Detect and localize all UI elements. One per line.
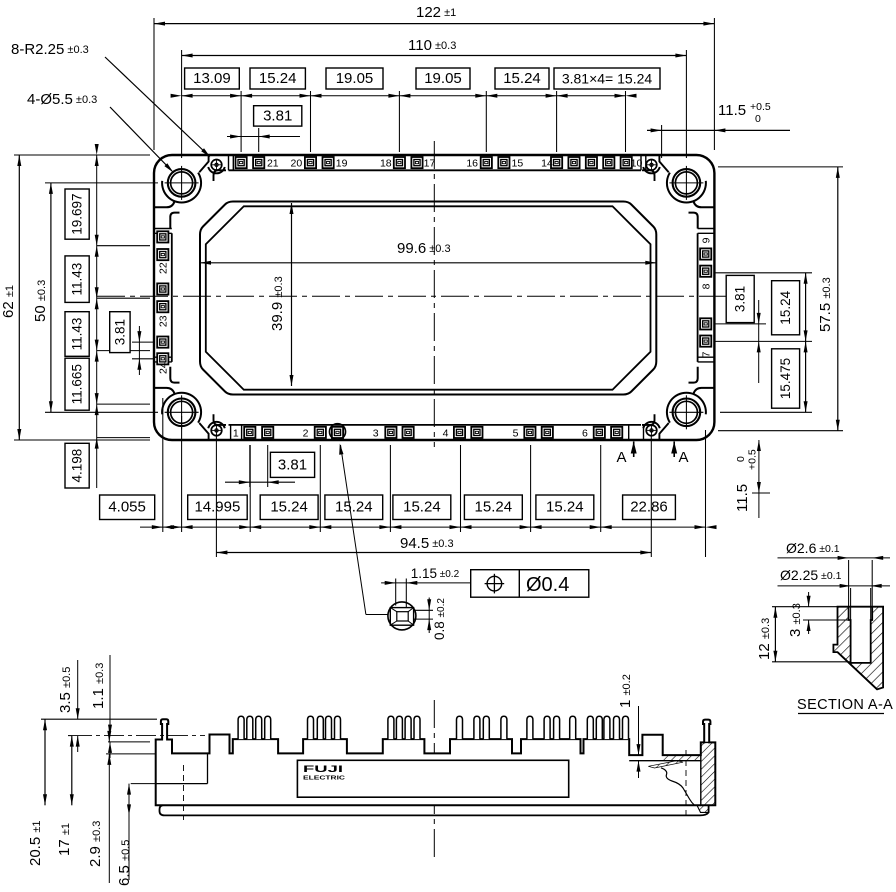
svg-text:22: 22	[158, 262, 170, 274]
svg-text:15.24: 15.24	[335, 499, 373, 516]
svg-text:9: 9	[701, 237, 713, 243]
svg-text:94.5 ±0.3: 94.5 ±0.3	[400, 535, 454, 552]
svg-text:FUJI: FUJI	[303, 764, 343, 774]
svg-text:ELECTRIC: ELECTRIC	[303, 776, 345, 782]
svg-text:15.24: 15.24	[270, 499, 308, 516]
svg-text:15.24: 15.24	[503, 70, 541, 87]
svg-text:14.995: 14.995	[194, 499, 240, 516]
svg-text:15.475: 15.475	[778, 358, 793, 399]
svg-text:Ø2.6 ±0.1: Ø2.6 ±0.1	[786, 540, 840, 556]
svg-text:22.86: 22.86	[630, 499, 668, 516]
svg-text:11.665: 11.665	[70, 364, 85, 404]
svg-text:15.24: 15.24	[475, 499, 513, 516]
svg-text:15.24: 15.24	[403, 499, 441, 516]
svg-text:11.5: 11.5	[718, 102, 746, 119]
svg-text:A: A	[679, 449, 689, 466]
svg-text:23: 23	[158, 315, 170, 327]
svg-text:99.6 ±0.3: 99.6 ±0.3	[397, 240, 451, 257]
svg-text:5: 5	[513, 428, 519, 440]
svg-text:24: 24	[158, 362, 170, 374]
svg-text:4.055: 4.055	[108, 499, 146, 516]
svg-text:16: 16	[466, 157, 478, 169]
svg-text:13.09: 13.09	[193, 70, 231, 87]
svg-text:3.81: 3.81	[278, 456, 307, 473]
svg-text:3.81×4= 15.24: 3.81×4= 15.24	[562, 71, 653, 87]
svg-text:+0.5: +0.5	[750, 101, 771, 113]
svg-text:21: 21	[267, 157, 279, 169]
svg-text:1.15 ±0.2: 1.15 ±0.2	[411, 566, 460, 581]
svg-text:1: 1	[233, 428, 239, 440]
svg-text:19: 19	[336, 157, 348, 169]
svg-text:Ø0.4: Ø0.4	[526, 574, 569, 596]
svg-text:11.5: 11.5	[734, 484, 751, 512]
svg-text:15.24: 15.24	[259, 70, 297, 87]
svg-text:18: 18	[380, 157, 392, 169]
svg-text:4.198: 4.198	[70, 449, 85, 483]
svg-text:0: 0	[735, 456, 747, 462]
svg-text:3.81: 3.81	[112, 319, 127, 345]
svg-text:3.81: 3.81	[733, 286, 748, 312]
svg-text:15.24: 15.24	[546, 499, 584, 516]
svg-text:14: 14	[541, 157, 553, 169]
svg-text:3.81: 3.81	[263, 107, 292, 124]
svg-text:3: 3	[373, 428, 379, 440]
svg-text:15: 15	[512, 157, 524, 169]
svg-text:17: 17	[424, 157, 436, 169]
svg-text:8-R2.25 ±0.3: 8-R2.25 ±0.3	[11, 41, 89, 58]
svg-text:2: 2	[303, 428, 309, 440]
svg-text:15.24: 15.24	[778, 290, 793, 324]
svg-text:SECTION A-A: SECTION A-A	[797, 697, 893, 713]
svg-text:7: 7	[701, 351, 713, 357]
svg-text:Ø2.25 ±0.1: Ø2.25 ±0.1	[780, 567, 842, 583]
svg-text:10: 10	[631, 157, 643, 169]
svg-text:110 ±0.3: 110 ±0.3	[408, 37, 456, 54]
svg-text:11.43: 11.43	[70, 263, 85, 296]
svg-text:122 ±1: 122 ±1	[416, 4, 456, 21]
svg-text:20: 20	[291, 157, 303, 169]
svg-text:11.43: 11.43	[70, 318, 85, 351]
svg-text:19.697: 19.697	[70, 193, 85, 234]
svg-text:6: 6	[582, 428, 588, 440]
svg-text:19.05: 19.05	[336, 70, 374, 87]
svg-text:+0.5: +0.5	[747, 449, 759, 470]
svg-text:A: A	[616, 449, 626, 466]
svg-text:4-Ø5.5 ±0.3: 4-Ø5.5 ±0.3	[27, 91, 97, 108]
svg-text:0: 0	[755, 113, 761, 125]
svg-text:8: 8	[701, 283, 713, 289]
svg-text:4: 4	[443, 428, 449, 440]
svg-text:19.05: 19.05	[424, 70, 462, 87]
